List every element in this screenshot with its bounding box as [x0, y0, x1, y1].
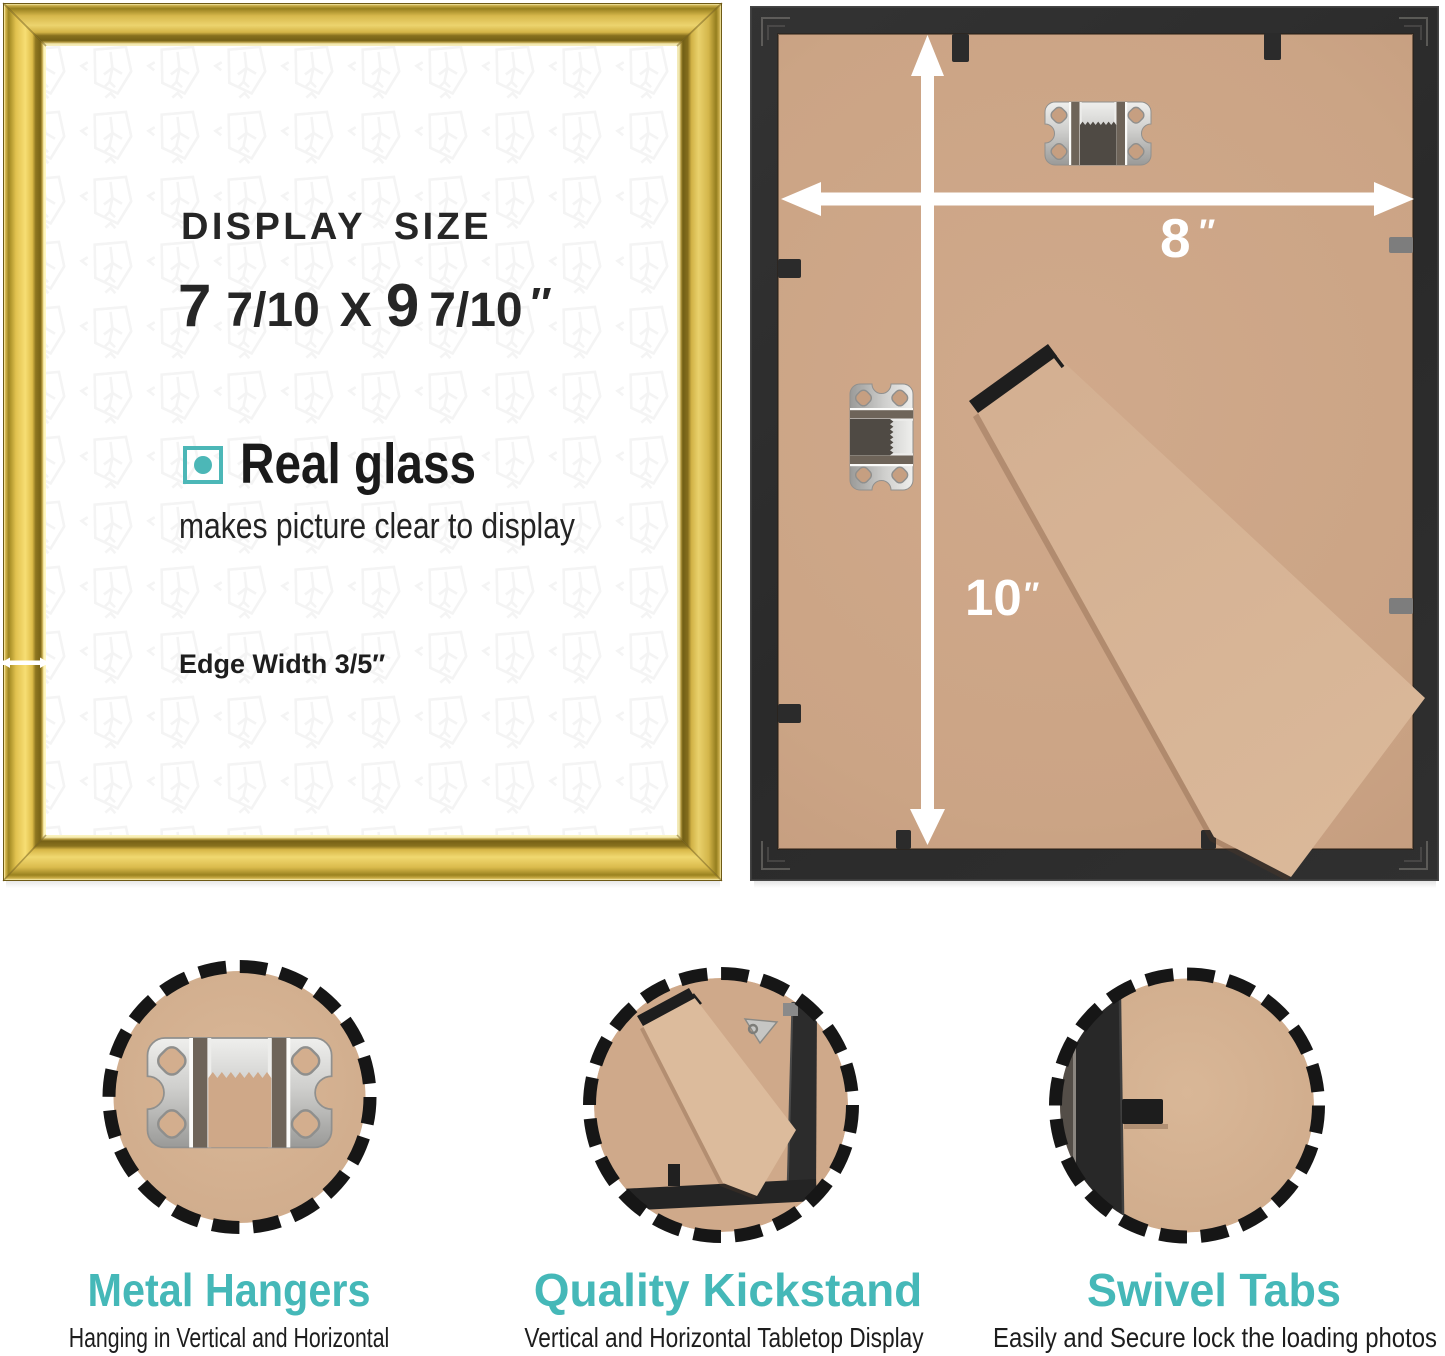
svg-text:″: ″: [1199, 213, 1215, 251]
svg-text:8: 8: [1160, 207, 1191, 269]
svg-text:10: 10: [965, 569, 1022, 626]
svg-text:″: ″: [1024, 576, 1039, 612]
